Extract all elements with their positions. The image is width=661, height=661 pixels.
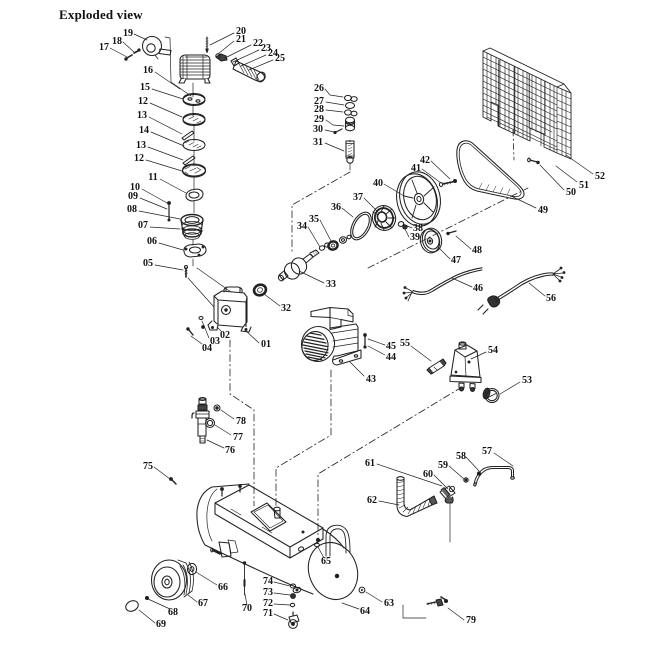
svg-text:05: 05 bbox=[143, 258, 153, 269]
svg-text:57: 57 bbox=[482, 446, 492, 457]
svg-text:02: 02 bbox=[220, 330, 230, 341]
svg-text:55: 55 bbox=[400, 338, 410, 349]
svg-text:21: 21 bbox=[236, 34, 246, 45]
svg-text:33: 33 bbox=[326, 279, 336, 290]
svg-text:14: 14 bbox=[139, 125, 149, 136]
svg-text:48: 48 bbox=[472, 245, 482, 256]
svg-text:42: 42 bbox=[420, 155, 430, 166]
svg-text:65: 65 bbox=[321, 556, 331, 567]
svg-text:78: 78 bbox=[236, 416, 246, 427]
svg-text:60: 60 bbox=[423, 469, 433, 480]
svg-text:66: 66 bbox=[218, 582, 228, 593]
svg-text:26: 26 bbox=[314, 83, 324, 94]
svg-text:30: 30 bbox=[313, 124, 323, 135]
svg-text:06: 06 bbox=[147, 236, 157, 247]
svg-text:77: 77 bbox=[233, 432, 243, 443]
svg-text:45: 45 bbox=[386, 341, 396, 352]
svg-text:15: 15 bbox=[140, 82, 150, 93]
svg-text:64: 64 bbox=[360, 606, 370, 617]
svg-text:63: 63 bbox=[384, 598, 394, 609]
svg-text:13: 13 bbox=[137, 110, 147, 121]
svg-text:16: 16 bbox=[143, 65, 153, 76]
svg-text:43: 43 bbox=[366, 374, 376, 385]
svg-text:04: 04 bbox=[202, 343, 212, 354]
svg-text:73: 73 bbox=[263, 587, 273, 598]
svg-text:34: 34 bbox=[297, 221, 307, 232]
svg-text:50: 50 bbox=[566, 187, 576, 198]
svg-text:08: 08 bbox=[127, 204, 137, 215]
svg-text:58: 58 bbox=[456, 451, 466, 462]
svg-text:12: 12 bbox=[138, 96, 148, 107]
svg-text:54: 54 bbox=[488, 345, 498, 356]
svg-text:17: 17 bbox=[99, 42, 109, 53]
svg-text:53: 53 bbox=[522, 375, 532, 386]
svg-text:76: 76 bbox=[225, 445, 235, 456]
svg-text:75: 75 bbox=[143, 461, 153, 472]
svg-text:52: 52 bbox=[595, 171, 605, 182]
svg-text:11: 11 bbox=[148, 172, 157, 183]
svg-text:67: 67 bbox=[198, 598, 208, 609]
svg-text:61: 61 bbox=[365, 458, 375, 469]
svg-text:36: 36 bbox=[331, 202, 341, 213]
svg-text:69: 69 bbox=[156, 619, 166, 630]
svg-text:72: 72 bbox=[263, 598, 273, 609]
svg-text:47: 47 bbox=[451, 255, 461, 266]
svg-text:25: 25 bbox=[275, 53, 285, 64]
svg-text:40: 40 bbox=[373, 178, 383, 189]
svg-text:71: 71 bbox=[263, 608, 273, 619]
svg-text:59: 59 bbox=[438, 460, 448, 471]
svg-text:44: 44 bbox=[386, 352, 396, 363]
svg-text:62: 62 bbox=[367, 495, 377, 506]
svg-text:56: 56 bbox=[546, 293, 556, 304]
svg-text:51: 51 bbox=[579, 180, 589, 191]
svg-text:49: 49 bbox=[538, 205, 548, 216]
svg-text:13: 13 bbox=[136, 140, 146, 151]
svg-text:12: 12 bbox=[134, 153, 144, 164]
svg-text:18: 18 bbox=[112, 36, 122, 47]
svg-text:32: 32 bbox=[281, 303, 291, 314]
svg-text:74: 74 bbox=[263, 576, 273, 587]
svg-text:39: 39 bbox=[410, 232, 420, 243]
svg-text:37: 37 bbox=[353, 192, 363, 203]
svg-text:01: 01 bbox=[261, 339, 271, 350]
svg-text:07: 07 bbox=[138, 220, 148, 231]
svg-text:19: 19 bbox=[123, 28, 133, 39]
svg-text:79: 79 bbox=[466, 615, 476, 626]
svg-text:35: 35 bbox=[309, 214, 319, 225]
svg-text:46: 46 bbox=[473, 283, 483, 294]
svg-text:09: 09 bbox=[128, 191, 138, 202]
svg-text:31: 31 bbox=[313, 137, 323, 148]
svg-text:Exploded view: Exploded view bbox=[59, 7, 143, 22]
